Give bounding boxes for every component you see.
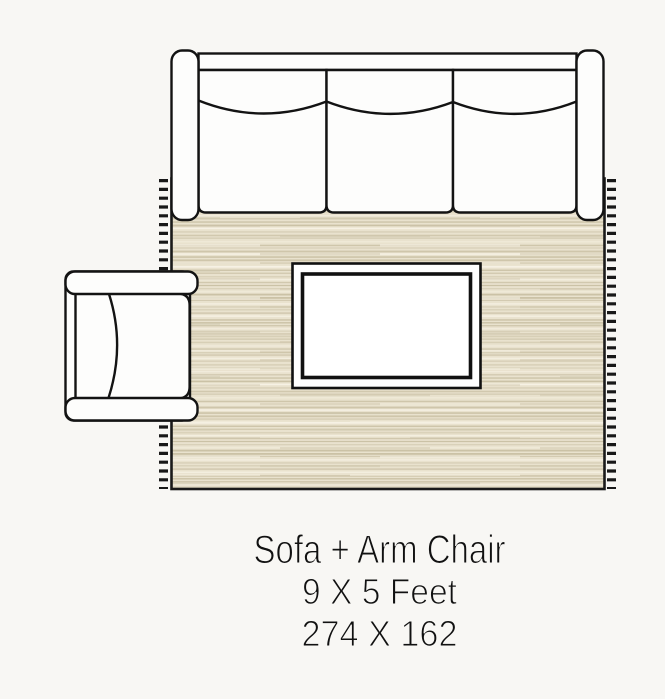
svg-text:274 X 162: 274 X 162 — [302, 613, 458, 654]
svg-text:9 X 5 Feet: 9 X 5 Feet — [302, 571, 457, 612]
svg-text:Sofa + Arm Chair: Sofa + Arm Chair — [254, 528, 506, 572]
